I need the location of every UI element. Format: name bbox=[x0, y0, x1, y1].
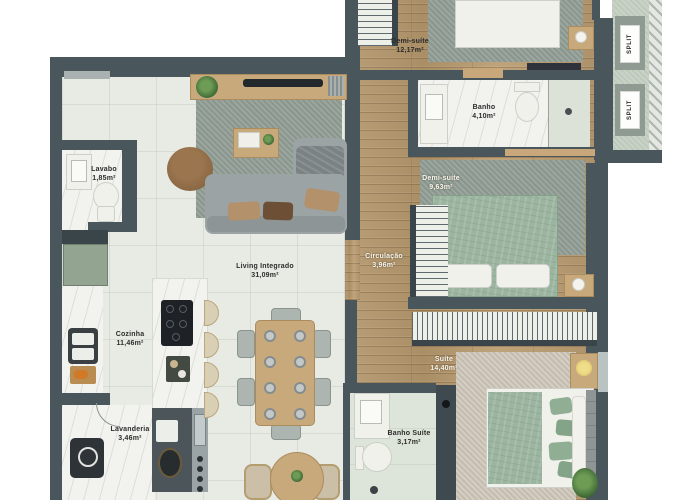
burner-3 bbox=[166, 320, 174, 328]
banho-wall-left bbox=[408, 70, 418, 157]
wall-left-outer bbox=[50, 57, 62, 500]
demi2-wardrobe-edge bbox=[410, 205, 416, 297]
banho-sliding-door-top bbox=[463, 68, 503, 78]
room-area: 12,17m² bbox=[391, 46, 429, 55]
plant-tv-sideboard bbox=[196, 76, 218, 98]
banho-toilet-bowl bbox=[515, 92, 539, 122]
room-name: Suíte bbox=[435, 356, 453, 363]
room-label-living: Living Integrado 31,09m² bbox=[236, 262, 294, 280]
dining-chair-bottom bbox=[271, 424, 301, 440]
room-area: 9,63m² bbox=[422, 183, 460, 192]
room-label-demi-suite-1: Demi-suíte 12,17m² bbox=[391, 37, 429, 55]
banho-suite-shower-fixture bbox=[370, 486, 378, 494]
banho-sliding-door-bottom bbox=[505, 149, 595, 156]
dining-chair-right-2 bbox=[313, 378, 331, 406]
concrete-hatch-strip bbox=[649, 0, 662, 152]
pillow-tan-1 bbox=[228, 201, 261, 221]
demi2-pillow-2 bbox=[496, 264, 550, 288]
room-name: Lavanderia bbox=[111, 426, 150, 433]
demi2-wardrobe bbox=[416, 205, 448, 297]
plate-6 bbox=[294, 382, 306, 394]
wall-right-upper bbox=[594, 18, 613, 160]
room-label-lavabo: Lavabo 1,85m² bbox=[91, 165, 117, 183]
room-label-banho-suite: Banho Suíte 3,17m² bbox=[387, 429, 430, 447]
room-area: 4,10m² bbox=[472, 112, 495, 121]
dining-chair-left-1 bbox=[237, 330, 255, 358]
room-label-suite: Suíte 14,40m² bbox=[430, 355, 457, 373]
plant-round-table bbox=[291, 470, 303, 482]
dining-chair-right-1 bbox=[313, 330, 331, 358]
wall-center-mid bbox=[345, 300, 357, 388]
room-name: Living Integrado bbox=[236, 263, 294, 270]
room-area: 31,09m² bbox=[236, 271, 294, 280]
suite-pillow-green-1 bbox=[549, 397, 573, 416]
lavabo-sink bbox=[71, 160, 87, 182]
room-name: Demi-suíte bbox=[422, 175, 460, 182]
room-area: 14,40m² bbox=[430, 364, 457, 373]
plate-4 bbox=[294, 356, 306, 368]
plate-2 bbox=[294, 330, 306, 342]
room-label-cozinha: Cozinha 11,46m² bbox=[116, 330, 145, 348]
suite-pillow-green-3 bbox=[548, 441, 573, 461]
lavabo-toilet-base bbox=[97, 206, 115, 222]
banho-suite-sink bbox=[360, 400, 382, 424]
wall-split-bottom bbox=[595, 150, 662, 163]
fridge-cabinet bbox=[63, 244, 108, 286]
pillow-brown bbox=[263, 201, 294, 220]
plate-5 bbox=[264, 382, 276, 394]
demi1-bed bbox=[455, 0, 560, 48]
suite-closet bbox=[412, 312, 597, 340]
dining-chair-left-2 bbox=[237, 378, 255, 406]
room-label-circulacao: Circulação 3,96m² bbox=[365, 252, 403, 270]
suite-wall-top bbox=[408, 297, 598, 309]
plate-8 bbox=[294, 408, 306, 420]
door-opening-corridor bbox=[345, 240, 360, 300]
banho-suite-wall-top bbox=[343, 383, 436, 393]
plate-1 bbox=[264, 330, 276, 342]
room-area: 3,17m² bbox=[387, 438, 430, 447]
kitchen-sink-basin-2 bbox=[72, 348, 94, 360]
room-name: Circulação bbox=[365, 253, 403, 260]
demi1-tv bbox=[527, 63, 581, 70]
burner-1 bbox=[166, 305, 174, 313]
split-tag-1: SPLIT bbox=[620, 25, 640, 63]
island-steel-sink bbox=[194, 414, 206, 446]
lavabo-wall-right bbox=[122, 140, 137, 232]
window-right bbox=[598, 352, 608, 392]
shower-drain bbox=[565, 108, 572, 115]
room-area: 11,46m² bbox=[116, 339, 145, 348]
coffee-table-tray bbox=[238, 132, 260, 148]
room-label-demi-suite-2: Demi-suíte 9,63m² bbox=[422, 174, 460, 192]
coffee-tray bbox=[166, 356, 190, 382]
kitchen-sink-basin-1 bbox=[72, 333, 94, 345]
room-label-banho: Banho 4,10m² bbox=[472, 103, 495, 121]
room-label-lavanderia: Lavanderia 3,46m² bbox=[111, 425, 150, 443]
room-area: 3,96m² bbox=[365, 261, 403, 270]
knob-4 bbox=[197, 486, 203, 492]
knob-2 bbox=[197, 466, 203, 472]
room-area: 1,85m² bbox=[91, 174, 117, 183]
kitchen-wall-stub-top bbox=[62, 230, 108, 244]
demi2-lamp bbox=[572, 278, 585, 291]
room-area: 3,46m² bbox=[111, 434, 150, 443]
plant-coffee-table bbox=[263, 134, 274, 145]
folded-towel bbox=[156, 420, 178, 442]
knob-3 bbox=[197, 476, 203, 482]
demi1-wardrobe bbox=[358, 0, 392, 46]
washing-machine-drum bbox=[78, 447, 98, 467]
banho-sink bbox=[425, 94, 443, 120]
suite-tv-mount bbox=[442, 400, 450, 408]
knob-1 bbox=[197, 456, 203, 462]
burner-5 bbox=[172, 333, 180, 341]
room-name: Demi-suíte bbox=[391, 38, 429, 45]
room-name: Lavabo bbox=[91, 166, 117, 173]
tv bbox=[243, 79, 323, 87]
cup-2 bbox=[178, 370, 186, 378]
banho-toilet-tank bbox=[514, 82, 540, 92]
split-label: SPLIT bbox=[627, 100, 633, 120]
entry-door bbox=[64, 71, 110, 79]
suite-bed-blanket bbox=[488, 392, 542, 484]
wall-right-top-stub bbox=[592, 0, 600, 20]
round-table-chair-left bbox=[244, 464, 272, 500]
suite-plant bbox=[572, 468, 598, 498]
split-label: SPLIT bbox=[627, 34, 633, 54]
split-tag-2: SPLIT bbox=[620, 91, 640, 129]
suite-closet-edge bbox=[412, 340, 597, 346]
suite-lamp bbox=[576, 360, 592, 376]
burner-4 bbox=[179, 320, 187, 328]
burner-2 bbox=[179, 305, 187, 313]
floor-plan: SPLIT SPLIT bbox=[0, 0, 700, 500]
bread bbox=[74, 370, 88, 379]
room-name: Banho Suíte bbox=[387, 430, 430, 437]
plate-3 bbox=[264, 356, 276, 368]
plate-7 bbox=[264, 408, 276, 420]
cup-1 bbox=[170, 360, 178, 368]
sideboard-speaker bbox=[328, 76, 344, 96]
demi1-lamp bbox=[575, 31, 587, 43]
island-basin bbox=[158, 448, 182, 478]
room-name: Cozinha bbox=[116, 331, 145, 338]
room-name: Banho bbox=[473, 104, 496, 111]
